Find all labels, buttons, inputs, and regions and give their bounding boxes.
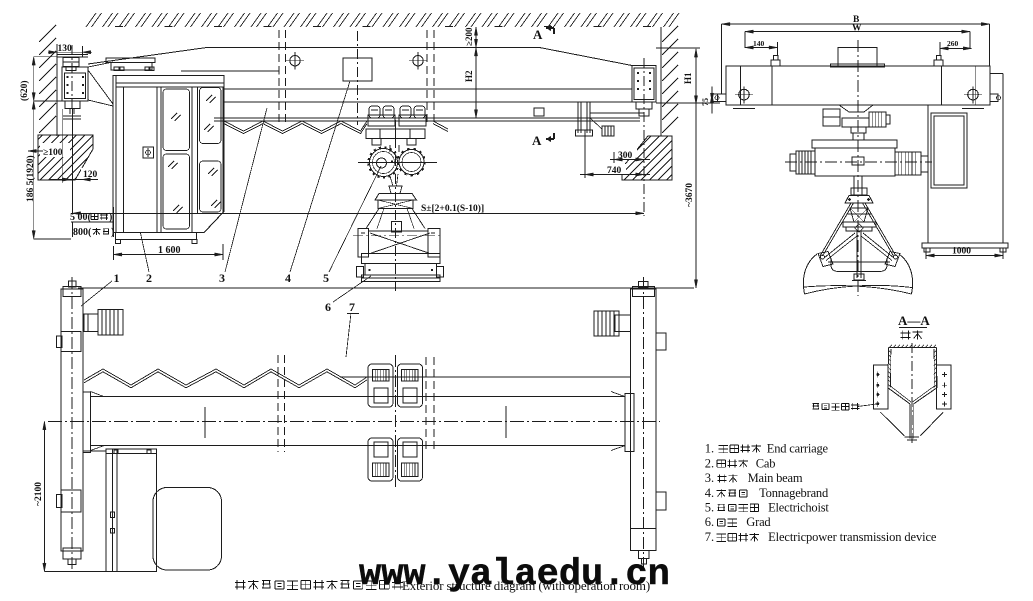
svg-text:3: 3 (219, 271, 225, 285)
svg-text:H1: H1 (683, 72, 693, 84)
svg-text:(620): (620) (19, 80, 30, 101)
svg-text:4.: 4. (705, 486, 714, 500)
svg-text:4: 4 (285, 271, 291, 285)
svg-text:H2: H2 (464, 70, 474, 82)
svg-text:75: 75 (701, 98, 710, 106)
svg-text:800(: 800( (73, 227, 92, 238)
svg-text:6: 6 (325, 300, 331, 314)
svg-text:Cab: Cab (756, 456, 776, 470)
svg-text:5: 5 (323, 271, 329, 285)
svg-text:2.: 2. (705, 456, 714, 470)
svg-text:1000: 1000 (952, 247, 971, 257)
svg-text:2: 2 (146, 271, 152, 285)
svg-text:≥100: ≥100 (43, 148, 63, 158)
svg-text:1 600: 1 600 (158, 245, 181, 256)
svg-text:6.: 6. (705, 515, 714, 529)
svg-text:): ) (109, 212, 112, 223)
svg-text:140: 140 (753, 39, 765, 48)
svg-text:Electricpower transmission dev: Electricpower transmission device (768, 530, 937, 544)
svg-text:260: 260 (947, 39, 959, 48)
svg-text:Main beam: Main beam (748, 471, 803, 485)
svg-text:A: A (533, 27, 543, 42)
svg-text:5 00(: 5 00( (70, 212, 92, 223)
svg-text:120: 120 (83, 170, 98, 180)
svg-text:Grad: Grad (746, 515, 771, 529)
svg-text:≥200: ≥200 (464, 27, 474, 46)
svg-text:7: 7 (349, 300, 355, 314)
svg-text:~3670: ~3670 (685, 183, 695, 207)
svg-text:W: W (852, 24, 862, 34)
svg-text:~2100: ~2100 (34, 482, 44, 506)
svg-text:S±[2+0.1(S-10)]: S±[2+0.1(S-10)] (421, 203, 484, 214)
svg-text:1: 1 (114, 271, 120, 285)
svg-text:A: A (532, 133, 542, 148)
svg-text:1.: 1. (705, 441, 714, 455)
svg-text:A—A: A—A (898, 313, 930, 328)
svg-text:Tonnagebrand: Tonnagebrand (759, 486, 829, 500)
svg-text:www.yalaedu.cn: www.yalaedu.cn (359, 554, 670, 596)
svg-text:Electrichoist: Electrichoist (768, 501, 829, 515)
svg-text:End carriage: End carriage (767, 441, 829, 455)
svg-text:7.: 7. (705, 530, 714, 544)
svg-text:5.: 5. (705, 501, 714, 515)
svg-text:186 5(1920): 186 5(1920) (25, 155, 36, 202)
svg-text:3.: 3. (705, 471, 714, 485)
